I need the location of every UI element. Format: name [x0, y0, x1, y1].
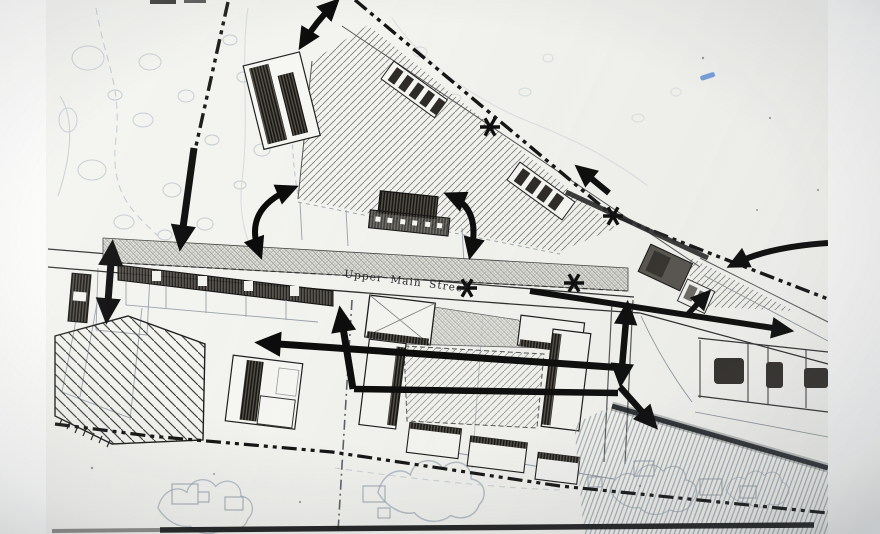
building-L-shape: [225, 355, 303, 429]
bottom-edge-band: [52, 530, 160, 531]
top-edge-mark: [150, 0, 176, 4]
building-west-bar: [68, 273, 91, 322]
arrow-two-way-west-street: [107, 249, 112, 315]
left-margin: [0, 0, 46, 534]
slide-photo: Upper Main Street: [0, 0, 880, 534]
right-margin: [828, 0, 880, 534]
site-plan-drawing: Upper Main Street: [0, 0, 880, 534]
top-edge-mark-2: [184, 0, 206, 3]
arrow-cross-lane-connector: [354, 389, 618, 393]
